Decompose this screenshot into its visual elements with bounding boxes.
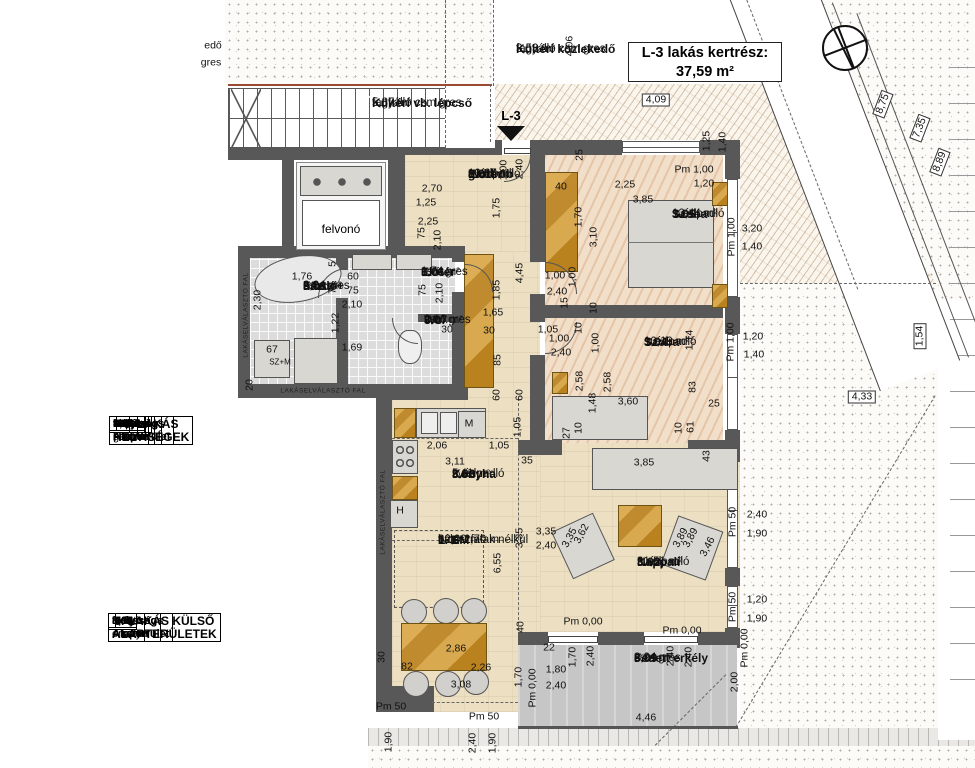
dimension-label: 2,06 xyxy=(427,441,447,452)
dimension-label: 3,11 xyxy=(445,457,465,468)
dimension-label: 75 xyxy=(417,227,428,239)
dimension-label: LAKÁSELVÁLASZTÓ FAL xyxy=(378,469,389,554)
dimension-label: Pm 0,00 xyxy=(662,626,701,637)
sliding-door xyxy=(548,636,598,643)
dimension-label: 40 xyxy=(516,621,527,633)
boundary-dashed xyxy=(740,283,936,284)
dimension-label: 35 xyxy=(521,456,533,467)
terrace-concrete xyxy=(225,0,492,86)
dimension-label: 10 xyxy=(674,422,685,434)
stove xyxy=(392,440,418,474)
nightstand xyxy=(712,182,728,206)
dimension-label: Pm 1,00 xyxy=(674,165,713,176)
dimension-label: 1,40 xyxy=(718,132,729,152)
terrace-edge-line xyxy=(228,84,492,86)
entry-door-leaf xyxy=(504,148,531,154)
dimension-label: 75 xyxy=(418,284,429,296)
dimension-label: 60 xyxy=(515,389,526,401)
dimension-label: 1,05 xyxy=(489,441,509,452)
dimension-label: 2,58 xyxy=(603,372,614,392)
dimension-label: 67 xyxy=(266,345,278,356)
dimension-label: 1,00 xyxy=(568,267,579,287)
dimension-label: 2,25 xyxy=(615,180,635,191)
dimension-label: 1,00 xyxy=(545,271,565,282)
sidewalk-band xyxy=(368,728,975,746)
dimension-label: 1,80 xyxy=(546,665,566,676)
dimension-label: Pm 50 xyxy=(728,507,739,537)
dimension-label: 2,40 xyxy=(468,733,479,753)
dimension-label: 1,54 xyxy=(914,323,927,349)
dimension-label: 1,22 xyxy=(331,313,342,333)
dimension-label: 25 xyxy=(575,149,586,161)
dimension-label: 5 xyxy=(328,261,339,267)
dimension-label: 3,85 xyxy=(633,195,653,206)
dimension-label: 3,10 xyxy=(589,227,600,247)
sofa xyxy=(592,448,738,490)
nightstand xyxy=(712,284,728,308)
dimension-label: SZ+M xyxy=(269,357,291,368)
dimension-label: 1,70 xyxy=(568,647,579,667)
dimension-label: 15 xyxy=(560,297,571,309)
kitchen-sink xyxy=(421,412,438,434)
kitchen-sink xyxy=(440,412,457,434)
dimension-label: 1,85 xyxy=(492,280,503,300)
room-label: Kültéri vb. lépcsőfagyálló csm.gres5,87 … xyxy=(368,96,376,98)
dimension-label: 2,86 xyxy=(446,644,466,655)
dimension-label: 1,90 xyxy=(747,529,767,540)
dimension-label: Pm 50 xyxy=(376,702,406,713)
dimension-label: Pm 1,00 xyxy=(726,322,737,361)
wall xyxy=(392,148,405,258)
dimension-label: 10 xyxy=(574,322,585,334)
dimension-label: 10 xyxy=(589,302,600,314)
dining-chair xyxy=(461,598,487,624)
dimension-label: 1,05 xyxy=(513,417,524,437)
dimension-label: 1,75 xyxy=(492,198,503,218)
dimension-label: 2,40 xyxy=(747,510,767,521)
dimension-label: Pm 50 xyxy=(469,712,499,723)
washbasin xyxy=(352,254,392,270)
dimension-label: 1,20 xyxy=(743,332,763,343)
wall xyxy=(530,155,545,262)
dimension-label: 2,25 xyxy=(418,217,438,228)
garden-title-box: L-3 lakás kertrész: 37,59 m² xyxy=(628,42,782,82)
dimension-label: M xyxy=(465,419,474,430)
bathroom-cabinet xyxy=(294,338,338,384)
coffee-table xyxy=(618,505,662,547)
elevator-label: felvonó xyxy=(322,222,361,236)
balcony-step-dashed xyxy=(432,702,518,703)
dimension-label: 1,90 xyxy=(747,614,767,625)
survey-marker-icon xyxy=(822,25,868,71)
dimension-label: 43 xyxy=(702,450,713,462)
wall xyxy=(530,294,545,322)
dimension-label: 25 xyxy=(708,399,720,410)
dimension-label: 61 xyxy=(686,421,697,433)
dimension-label: 20 xyxy=(245,379,256,391)
dimension-label: 1,40 xyxy=(744,350,764,361)
dimension-label: Pm 1,00 xyxy=(727,217,738,256)
dimension-label: 4,09 xyxy=(642,94,670,107)
dimension-label: 3,08 xyxy=(451,680,471,691)
dimension-label: 2,40 xyxy=(551,348,571,359)
dimension-label: 1,90 xyxy=(384,732,395,752)
dimension-label: 1,25 xyxy=(416,198,436,209)
bed-divider-line xyxy=(628,242,714,243)
dimension-label: 22 xyxy=(543,643,555,654)
dimension-label: 1,70 xyxy=(514,667,525,687)
kitchen-cabinet xyxy=(394,408,416,438)
dimension-label: Pm 0,00 xyxy=(740,628,751,667)
dimension-label: 3,85 xyxy=(634,458,654,469)
dimension-label: 2,10 xyxy=(433,230,444,250)
balcony-railing xyxy=(518,726,738,729)
dimension-label: 40 xyxy=(555,182,567,193)
dimension-label: 83 xyxy=(688,381,699,393)
kitchen-cabinet xyxy=(392,476,418,500)
dimension-label: Pm 0,00 xyxy=(528,668,539,707)
elevator-machinery xyxy=(300,166,382,196)
dimension-label: 4,45 xyxy=(515,263,526,283)
sliding-door xyxy=(644,636,698,643)
wall xyxy=(725,568,740,586)
dimension-label: 1,20 xyxy=(694,179,714,190)
dimension-label: 2,10 xyxy=(435,283,446,303)
table-total: 80,46 m² xyxy=(109,416,145,431)
wall xyxy=(392,386,468,400)
boundary-dashed xyxy=(445,0,446,148)
dimension-label: 2,40 xyxy=(547,287,567,298)
garden-title-line2: 37,59 m² xyxy=(629,63,781,82)
dimension-label: 30 xyxy=(377,651,388,663)
dimension-label: Pm 0,00 xyxy=(563,617,602,628)
dimension-label: 2,40 xyxy=(536,541,556,552)
dimension-label: 60 xyxy=(492,389,503,401)
dimension-label: 4,33 xyxy=(848,391,876,404)
dimension-label: 1,00 xyxy=(591,333,602,353)
dimension-label: 1,70 xyxy=(574,207,585,227)
dimension-label: 2,26 xyxy=(471,663,491,674)
dimension-label: 30 xyxy=(483,326,495,337)
dimension-label: 3,60 xyxy=(618,397,638,408)
boundary-dashed xyxy=(493,0,494,86)
dimension-label: 2,70 xyxy=(422,184,442,195)
dimension-label: 1,65 xyxy=(483,308,503,319)
dimension-label: H xyxy=(396,506,404,517)
room-label: Kültéri közlekedőfagyálló csm.gres3,53 m… xyxy=(512,42,520,44)
dining-chair xyxy=(401,599,427,625)
dimension-label: 1,25 xyxy=(702,131,713,151)
dimension-label: gres xyxy=(201,58,221,69)
dimension-label: 4,46 xyxy=(636,713,656,724)
dimension-label: 1,48 xyxy=(588,393,599,413)
wall xyxy=(530,355,545,443)
dimension-label: 3,35 xyxy=(536,527,556,538)
dimension-label: 2,10 xyxy=(342,300,362,311)
garden-title-line1: L-3 lakás kertrész: xyxy=(629,44,781,63)
dimension-label: 1,90 xyxy=(488,733,499,753)
dimension-label: 2,40 xyxy=(586,646,597,666)
entry-label: L-3 xyxy=(501,108,521,123)
dimension-label: 85 xyxy=(493,354,504,366)
wall xyxy=(518,440,562,455)
gravel-bottom-strip xyxy=(368,746,975,768)
dining-chair xyxy=(403,671,429,697)
dimension-label: 1,00 xyxy=(549,334,569,345)
dimension-label: 1,40 xyxy=(742,242,762,253)
wall xyxy=(725,155,740,179)
dimension-label: 2,00 xyxy=(730,672,741,692)
nightstand xyxy=(552,372,568,394)
dining-chair xyxy=(433,598,459,624)
dimension-label: 1,20 xyxy=(747,595,767,606)
fridge xyxy=(390,500,418,528)
dimension-label: LAKÁSELVÁLASZTÓ FAL xyxy=(241,272,252,357)
dimension-label: 2,58 xyxy=(575,371,586,391)
wall xyxy=(545,305,723,318)
floor-plan-canvas: felvonó xyxy=(0,0,975,768)
dimension-label: 27 xyxy=(562,427,573,439)
wall xyxy=(282,148,294,260)
dimension-label: 1,69 xyxy=(342,343,362,354)
dimension-label: 2,30 xyxy=(253,290,264,310)
entry-arrow-icon xyxy=(497,126,525,141)
dimension-label: 3,20 xyxy=(742,224,762,235)
boundary-dashed xyxy=(490,84,491,142)
dimension-label: 6,55 xyxy=(493,553,504,573)
dimension-label: LAKÁSELVÁLASZTÓ FAL xyxy=(280,386,365,397)
dimension-label: 82 xyxy=(401,662,413,673)
dimension-label: 10 xyxy=(574,422,585,434)
stair-break-icon xyxy=(231,89,261,149)
table-total: 8,94 m² xyxy=(108,613,137,628)
window xyxy=(622,141,700,153)
dimension-label: 2,40 xyxy=(546,681,566,692)
dimension-label: edő xyxy=(204,41,222,52)
dimension-label: Pm 50 xyxy=(728,592,739,622)
